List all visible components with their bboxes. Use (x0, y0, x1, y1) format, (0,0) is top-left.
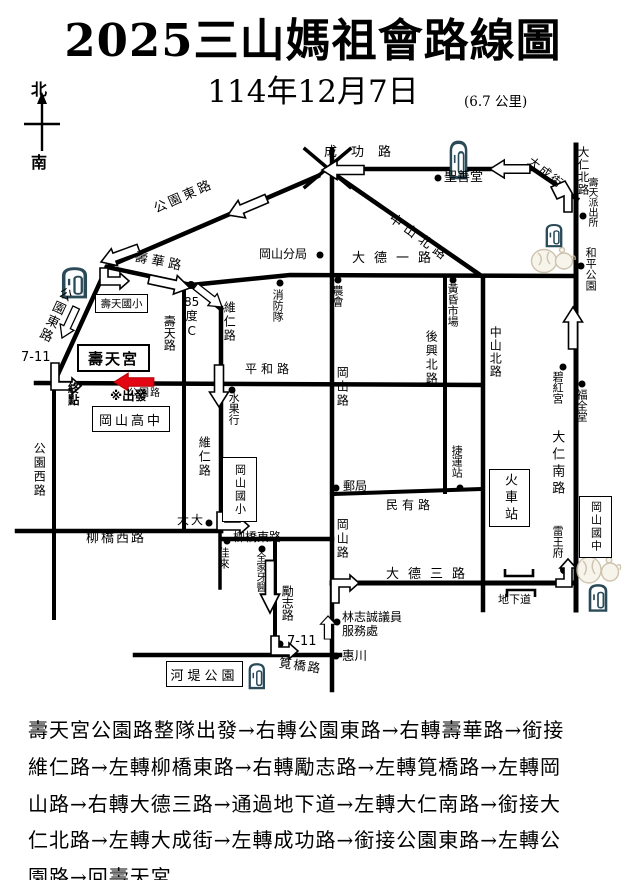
event-date: 114年12月7日 (0, 66, 626, 111)
poi-label-fruit-shop: 水果行 (227, 392, 239, 425)
poi-dot (277, 280, 284, 287)
arrow-darennan-up (564, 307, 583, 349)
poi-label-mrt: 捷運站 (450, 445, 462, 478)
page-title: 2025三山媽祖會路線圖 (0, 4, 626, 69)
poi-dots (187, 175, 587, 660)
poi-label-heping-park: 和平公園 (584, 247, 596, 291)
poi-label-jialai: 佳來 (217, 547, 229, 569)
poi-dot (224, 538, 231, 545)
road-label-lizhi: 勵志路 (280, 585, 293, 621)
road-label-liuqiao-east: 柳橋東路 (233, 531, 281, 544)
poi-dot (457, 485, 464, 492)
road-label-dade-3: 大德三路 (386, 568, 474, 582)
poi-dot (333, 485, 340, 492)
road-label-weiren-2: 維仁路 (197, 436, 210, 478)
road-label-dade-1: 大德一路 (352, 252, 440, 266)
road-dade-1 (191, 275, 576, 285)
route-map-page: 公園路 (0, 0, 626, 880)
road-gongyuan-pinghe (36, 383, 482, 385)
poi-dot (560, 364, 567, 371)
landmark-shoutian-gong: 壽天宮 (77, 344, 150, 372)
poi-dot (206, 520, 213, 527)
temple-icon (590, 585, 606, 610)
road-label-gangshan-1: 岡山路 (335, 366, 348, 408)
road-label-chenggong: 成功路 (324, 146, 405, 160)
poi-label-seven11-west: 7-11 (21, 351, 51, 365)
arrow-chenggong-junction (322, 161, 364, 180)
poi-dot (333, 653, 340, 660)
poi-label-post-office: 郵局 (343, 480, 367, 493)
poi-label-underpass: 地下道 (498, 594, 531, 606)
poi-dot (317, 252, 324, 259)
landmark-gangshan-jhs: 岡山國中 (579, 496, 612, 558)
arrow-chenggong-east (490, 160, 530, 178)
poi-label-nonghui: 農會 (331, 285, 343, 307)
poi-dot (579, 381, 586, 388)
end-point-label: 終 點 (68, 383, 80, 406)
road-label-zhongshan-north-vert: 中山北路 (488, 326, 501, 378)
road-label-gangshan-2: 岡山路 (335, 518, 348, 560)
landmark-shoutian-gong-label: 壽天宮 (88, 348, 139, 369)
poi-label-85c: 85 度 C (184, 295, 199, 338)
landmark-gangshan-shs-label: 岡山高中 (99, 410, 163, 429)
poi-label-dada: 大大 (177, 514, 205, 527)
poi-label-gangshan-branch: 岡山分局 (259, 248, 307, 261)
road-label-daren-south: 大仁南路 (549, 430, 563, 498)
depart-label: ※出發 (110, 389, 147, 403)
landmark-train-station: 火車站 (489, 469, 530, 527)
road-label-minyou: 民有路 (386, 499, 434, 512)
landmark-shoutian-es: 壽天國小 (95, 294, 148, 313)
poi-dot (335, 277, 342, 284)
poi-label-councilor: 林志誠議員 服務處 (342, 610, 402, 639)
poi-label-shengshantang: 聖善堂 (444, 171, 483, 185)
road-label-liuqiao-west: 柳橋西路 (86, 532, 146, 546)
compass-south-label: 南 (31, 149, 47, 173)
landmark-gangshan-shs: 岡山高中 (92, 406, 170, 432)
landmark-gangshan-es: 岡山國小 (222, 457, 257, 522)
poi-label-huichuan: 惠川 (342, 649, 367, 663)
poi-label-seven11-south: 7-11 (287, 635, 317, 649)
road-label-pinghe: 平和路 (245, 363, 293, 376)
arrow-gongyuandong-upper (224, 190, 270, 224)
landmark-shoutian-es-label: 壽天國小 (101, 296, 143, 311)
poi-label-bihong: 碧紅宮 (551, 371, 563, 404)
poi-dot (435, 175, 442, 182)
landmark-hedi-park-label: 河堤公園 (170, 665, 238, 684)
road-label-shoutian: 壽天路 (162, 315, 175, 351)
landmark-train-station-label: 火車站 (500, 473, 519, 524)
arrow-bend-dade3 (331, 575, 359, 603)
poi-label-leiwangfu: 雷王府 (551, 525, 563, 558)
temple-icon (547, 225, 561, 246)
route-distance: (6.7 公里) (464, 90, 527, 110)
road-label-weiren-1: 維仁路 (222, 301, 235, 343)
road-label-gongyuan-west: 公園西路 (32, 442, 45, 498)
route-description: 壽天宮公園路整隊出發→右轉公園東路→右轉壽華路→銜接 維仁路→左轉柳橋東路→右轉… (28, 712, 608, 880)
poi-label-fire-brigade: 消防隊 (271, 289, 283, 322)
landmark-gangshan-es-label: 岡山國小 (232, 464, 248, 516)
poi-label-market: 黃昏市場 (446, 283, 458, 327)
temple-icon (250, 664, 264, 688)
poi-label-family-dental: 全家牙醫 (254, 552, 265, 592)
poi-label-shoutian-police: 壽天派出所 (586, 177, 597, 227)
landmark-gangshan-jhs-label: 岡山國中 (588, 501, 604, 553)
road-label-houxing-north: 後興北路 (424, 330, 437, 386)
landmark-hedi-park: 河堤公園 (166, 661, 243, 687)
compass-north-label: 北 (31, 76, 47, 100)
poi-label-fuquan: 福全堂 (575, 389, 587, 422)
